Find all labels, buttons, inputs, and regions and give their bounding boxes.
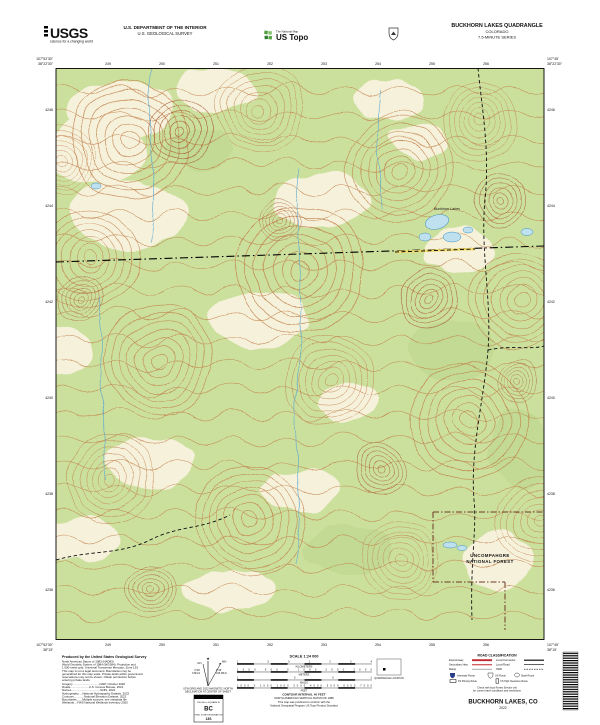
ustopo-label: US Topo xyxy=(276,33,308,42)
svg-text:253: 253 xyxy=(321,643,327,647)
svg-text:251: 251 xyxy=(213,643,219,647)
interstate-shield-icon xyxy=(450,673,455,678)
produced-by: Produced by the United States Geological… xyxy=(62,655,146,659)
svg-text:4238: 4238 xyxy=(547,492,555,496)
svg-text:256: 256 xyxy=(483,62,489,66)
ticks-top: 249250 251252 253254 255256 xyxy=(105,62,489,66)
svg-text:4236: 4236 xyxy=(45,588,53,592)
road-classification: ROAD CLASSIFICATION Expressway Local Con… xyxy=(449,654,544,693)
road-class-title: ROAD CLASSIFICATION xyxy=(477,654,517,658)
road-note-2: for current travel conditions and restri… xyxy=(473,690,522,693)
standard-note-2: National Geospatial Program US Topo Prod… xyxy=(270,703,338,707)
ticks-right: 42464244 42424240 42384236 xyxy=(547,108,555,592)
svg-text:251: 251 xyxy=(213,62,219,66)
usng-square: BC xyxy=(204,707,213,713)
local-connector-label: Local Connector xyxy=(496,658,516,662)
forest-label-2: NATIONAL FOREST xyxy=(466,559,513,564)
svg-text:4246: 4246 xyxy=(45,108,53,112)
svg-text:4242: 4242 xyxy=(45,300,53,304)
svg-text:256: 256 xyxy=(483,643,489,647)
expressway-label: Expressway xyxy=(449,658,464,662)
gn-label: GN xyxy=(197,661,201,665)
ticks-bottom: 249250 251252 253254 255256 xyxy=(105,643,489,647)
fourwd-label: 4WD xyxy=(496,667,502,671)
svg-text:4244: 4244 xyxy=(45,204,53,208)
topo-map-svg: USGS science for a changing world U.S. D… xyxy=(0,0,600,725)
ustopo-logo: The National Map US Topo xyxy=(264,30,308,43)
corner-br-lon: 107°45' xyxy=(547,643,559,647)
state-route-label: State Route xyxy=(521,675,535,678)
svg-text:4240: 4240 xyxy=(547,396,555,400)
usng-title: U.S. NATIONAL GRID xyxy=(197,696,220,699)
agency-line-1: U.S. DEPARTMENT OF THE INTERIOR xyxy=(123,25,207,30)
declination-diagram: ★ GN MN 0°29' 9 MILS 9°16' 165 MILS UTM … xyxy=(183,656,233,694)
gn-mils: 9 MILS xyxy=(192,672,200,675)
corner-tr-lat: 38°22'30" xyxy=(547,62,563,66)
secondary-hwy-label: Secondary Hwy xyxy=(449,663,468,667)
barcode xyxy=(563,652,578,710)
header: USGS science for a changing world U.S. D… xyxy=(44,23,543,44)
svg-text:255: 255 xyxy=(429,62,435,66)
svg-text:4242: 4242 xyxy=(547,300,555,304)
ramp-label: Ramp xyxy=(449,667,457,671)
true-north-star: ★ xyxy=(206,656,210,661)
usgs-topo-sheet: USGS science for a changing world U.S. D… xyxy=(0,0,600,725)
svg-text:254: 254 xyxy=(375,62,381,66)
svg-text:Wetlands....FWS National Wetla: Wetlands....FWS National Wetlands Invent… xyxy=(62,701,128,705)
km-numbers: 1 .5 0 1 2 3 4 xyxy=(237,659,373,663)
interstate-label: Interstate Route xyxy=(457,675,475,678)
quad-state: COLORADO xyxy=(486,29,509,34)
fs-high-clearance-label: FS High Clearance Route xyxy=(501,680,529,683)
svg-text:250: 250 xyxy=(159,62,165,66)
ticks-left: 42464244 42424240 42384236 xyxy=(45,108,53,592)
svg-text:252: 252 xyxy=(267,643,273,647)
quad-series: 7.5-MINUTE SERIES xyxy=(478,35,516,40)
credit-lines: North American Datum of 1983 (NAD83) Wor… xyxy=(62,660,143,705)
m-label: METERS xyxy=(299,673,310,677)
vertical-datum: NORTH AMERICAN VERTICAL DATUM OF 1988 xyxy=(274,696,334,700)
local-road-label: Local Road xyxy=(496,663,510,667)
quad-location-marker xyxy=(383,668,386,671)
corner-bl-lon: 107°52'30" xyxy=(36,643,54,647)
svg-text:4240: 4240 xyxy=(45,396,53,400)
footer: Produced by the United States Geological… xyxy=(62,652,578,722)
svg-text:4246: 4246 xyxy=(547,108,555,112)
svg-text:252: 252 xyxy=(267,62,273,66)
corner-tl-lat: 38°22'30" xyxy=(38,62,54,66)
m-numbers: 1000 500 0 1000 2000 3000 xyxy=(237,667,373,671)
usgs-logo: USGS science for a changing world xyxy=(44,25,93,44)
us-route-shield-icon xyxy=(488,673,493,678)
ft-numbers: 1000 0 1000 2000 3000 4000 5000 6000 700… xyxy=(237,683,373,687)
scale-title: SCALE 1:24 000 xyxy=(290,655,319,659)
scale-bars: SCALE 1:24 000 1 .5 0 1 2 3 4 KILOMETERS… xyxy=(237,655,373,708)
forest-service-shield-icon xyxy=(389,28,398,40)
svg-text:254: 254 xyxy=(375,643,381,647)
mn-mils: 165 MILS xyxy=(216,672,227,675)
quad-location-caption: QUADRANGLE LOCATION xyxy=(374,677,404,680)
fs-high-clearance-icon xyxy=(496,679,499,683)
svg-text:250: 250 xyxy=(159,643,165,647)
corner-tr-lon: 107°45' xyxy=(547,57,559,61)
quadrangle-location: QUADRANGLE LOCATION xyxy=(374,659,404,680)
corner-tl-lon: 107°52'30" xyxy=(36,57,54,61)
usgs-tagline: science for a changing world xyxy=(50,40,93,44)
national-map-icon xyxy=(264,30,272,39)
sheet-title: BUCKHORN LAKES, CO xyxy=(468,700,538,706)
lakes-label: Buckhorn Lakes xyxy=(434,207,460,211)
mn-label: MN xyxy=(222,660,226,664)
declination-caption-2: DECLINATION AT CENTER OF SHEET xyxy=(185,690,231,694)
agency-line-2: U.S. GEOLOGICAL SURVEY xyxy=(138,31,193,36)
corner-bl-lat: 38°15' xyxy=(43,648,53,652)
forest-label-1: UNCOMPAHGRE xyxy=(470,553,509,558)
svg-text:253: 253 xyxy=(321,62,327,66)
corner-br-lat: 38°15' xyxy=(547,648,557,652)
svg-text:249: 249 xyxy=(105,643,111,647)
usng-square-label: 100,000-m SQUARE ID xyxy=(197,701,221,704)
fs-primary-icon xyxy=(450,680,456,683)
svg-text:4238: 4238 xyxy=(45,492,53,496)
svg-text:249: 249 xyxy=(105,62,111,66)
usng-box: U.S. NATIONAL GRID 100,000-m SQUARE ID B… xyxy=(194,695,223,722)
usng-zone: 13S xyxy=(205,717,212,721)
svg-text:4236: 4236 xyxy=(547,588,555,592)
state-route-icon xyxy=(515,673,520,677)
us-route-label: US Route xyxy=(495,675,506,678)
sheet-year: 2022 xyxy=(499,706,507,710)
svg-text:255: 255 xyxy=(429,643,435,647)
svg-text:4244: 4244 xyxy=(547,204,555,208)
fs-primary-label: FS Primary Route xyxy=(458,680,478,683)
map-body: Buckhorn Lakes UNCOMPAHGRE NATIONAL FORE… xyxy=(25,66,584,640)
